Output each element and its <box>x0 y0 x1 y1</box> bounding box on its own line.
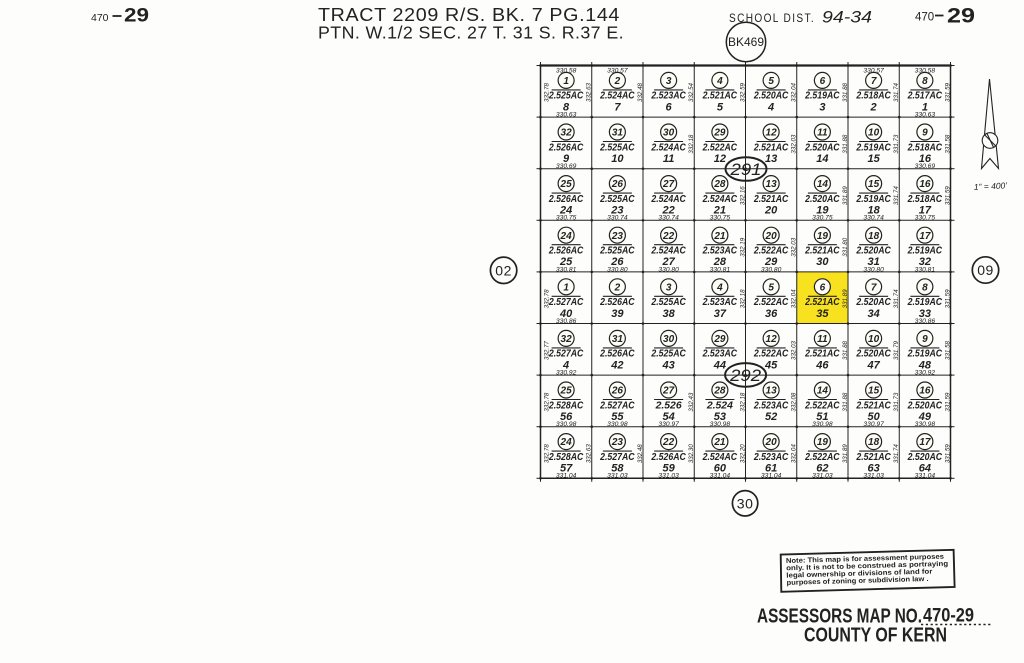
svg-text:332.03: 332.03 <box>791 134 798 153</box>
svg-text:2.519AC: 2.519AC <box>907 349 943 360</box>
svg-text:331.88: 331.88 <box>842 392 849 411</box>
svg-text:12: 12 <box>766 128 778 139</box>
svg-text:331.03: 331.03 <box>812 473 833 480</box>
svg-text:36: 36 <box>765 308 778 320</box>
svg-text:332.18: 332.18 <box>740 289 747 308</box>
svg-text:10: 10 <box>868 128 880 139</box>
svg-text:17: 17 <box>919 437 931 448</box>
svg-text:331.89: 331.89 <box>842 444 849 463</box>
svg-text:332.19: 332.19 <box>740 237 747 256</box>
svg-text:09: 09 <box>977 262 994 278</box>
svg-text:12: 12 <box>714 153 726 165</box>
svg-text:22: 22 <box>662 437 675 448</box>
svg-text:331.89: 331.89 <box>842 289 849 308</box>
svg-text:2.524AC: 2.524AC <box>702 194 738 205</box>
svg-text:2.527AC: 2.527AC <box>599 452 635 463</box>
svg-text:332.03: 332.03 <box>791 340 798 359</box>
svg-text:94-34: 94-34 <box>822 8 872 27</box>
svg-text:2.521AC: 2.521AC <box>753 194 789 205</box>
svg-text:331.59: 331.59 <box>945 444 952 463</box>
svg-text:27: 27 <box>662 179 675 190</box>
svg-text:COUNTY OF KERN: COUNTY OF KERN <box>804 624 947 647</box>
svg-text:2.526: 2.526 <box>655 400 683 411</box>
svg-text:7: 7 <box>871 76 877 87</box>
svg-text:332.59: 332.59 <box>740 82 747 101</box>
svg-text:2.522AC: 2.522AC <box>804 400 840 411</box>
svg-text:2.519AC: 2.519AC <box>907 297 943 308</box>
svg-text:332.30: 332.30 <box>688 444 695 463</box>
svg-text:16: 16 <box>919 386 931 397</box>
svg-text:2.522AC: 2.522AC <box>753 246 789 257</box>
svg-text:23: 23 <box>611 437 624 448</box>
svg-text:4: 4 <box>716 282 723 293</box>
svg-text:29: 29 <box>124 5 149 27</box>
svg-text:22: 22 <box>662 231 675 242</box>
svg-text:17: 17 <box>919 231 931 242</box>
svg-text:14: 14 <box>817 386 829 397</box>
svg-text:292: 292 <box>729 366 762 385</box>
svg-text:331.79: 331.79 <box>893 340 900 359</box>
svg-text:2.525AC: 2.525AC <box>599 194 635 205</box>
svg-text:2.517AC: 2.517AC <box>907 91 943 102</box>
svg-text:2.526AC: 2.526AC <box>599 297 635 308</box>
svg-text:1” = 400’: 1” = 400’ <box>974 180 1008 192</box>
svg-text:25: 25 <box>560 179 573 190</box>
svg-text:7: 7 <box>614 101 621 113</box>
svg-text:331.74: 331.74 <box>893 444 900 463</box>
svg-text:16: 16 <box>919 179 931 190</box>
svg-text:2.521AC: 2.521AC <box>804 349 840 360</box>
svg-text:331.04: 331.04 <box>761 473 782 480</box>
svg-text:15: 15 <box>868 386 880 397</box>
svg-text:2.525AC: 2.525AC <box>599 142 635 153</box>
svg-text:32: 32 <box>561 128 573 139</box>
svg-text:330.75: 330.75 <box>556 215 577 222</box>
svg-text:2.526AC: 2.526AC <box>599 349 635 360</box>
svg-text:330.80: 330.80 <box>761 266 782 273</box>
svg-text:330.98: 330.98 <box>915 421 936 428</box>
svg-text:330.74: 330.74 <box>658 215 679 222</box>
svg-text:332.18: 332.18 <box>740 392 747 411</box>
svg-text:3: 3 <box>666 76 672 87</box>
svg-text:331.59: 331.59 <box>945 392 952 411</box>
svg-text:32: 32 <box>561 334 573 345</box>
svg-text:2.518AC: 2.518AC <box>907 142 943 153</box>
svg-text:BK469: BK469 <box>728 35 764 49</box>
svg-text:2.525AC: 2.525AC <box>650 297 686 308</box>
svg-text:332.78: 332.78 <box>544 392 551 411</box>
svg-text:11: 11 <box>817 334 828 345</box>
svg-text:332.20: 332.20 <box>740 444 747 463</box>
svg-text:35: 35 <box>816 308 829 320</box>
svg-text:2.524AC: 2.524AC <box>650 142 686 153</box>
svg-text:2.520AC: 2.520AC <box>855 349 891 360</box>
svg-text:2.524AC: 2.524AC <box>650 194 686 205</box>
svg-text:52: 52 <box>765 411 777 423</box>
svg-text:470: 470 <box>915 12 934 24</box>
svg-text:30: 30 <box>816 256 829 268</box>
svg-text:2.527AC: 2.527AC <box>548 349 584 360</box>
svg-text:2.518AC: 2.518AC <box>907 194 943 205</box>
svg-text:2.524AC: 2.524AC <box>702 452 738 463</box>
svg-text:332.78: 332.78 <box>544 444 551 463</box>
svg-text:332.63: 332.63 <box>586 444 593 463</box>
svg-text:2.520AC: 2.520AC <box>855 246 891 257</box>
svg-text:4: 4 <box>767 101 774 113</box>
svg-text:30: 30 <box>663 128 675 139</box>
svg-text:43: 43 <box>661 359 674 371</box>
svg-text:2.523AC: 2.523AC <box>753 400 789 411</box>
svg-text:332.04: 332.04 <box>791 444 798 463</box>
svg-text:2.526AC: 2.526AC <box>548 142 584 153</box>
svg-text:2.520AC: 2.520AC <box>804 194 840 205</box>
svg-text:2.524AC: 2.524AC <box>650 246 686 257</box>
svg-text:2.527AC: 2.527AC <box>599 400 635 411</box>
svg-text:10: 10 <box>611 153 624 165</box>
svg-text:PTN. W.1/2 SEC. 27 T. 31 S. R.: PTN. W.1/2 SEC. 27 T. 31 S. R.37 E. <box>318 23 624 43</box>
svg-text:330.69: 330.69 <box>556 163 577 170</box>
svg-text:37: 37 <box>714 308 727 320</box>
svg-text:330.92: 330.92 <box>915 370 936 377</box>
svg-text:3: 3 <box>666 282 672 293</box>
svg-text:1: 1 <box>563 76 569 87</box>
svg-text:331.88: 331.88 <box>842 82 849 101</box>
svg-text:2.521AC: 2.521AC <box>855 452 891 463</box>
svg-text:46: 46 <box>815 359 829 371</box>
svg-text:25: 25 <box>560 386 573 397</box>
svg-text:7: 7 <box>871 282 877 293</box>
svg-text:330.69: 330.69 <box>915 163 936 170</box>
svg-text:8: 8 <box>922 282 928 293</box>
svg-text:11: 11 <box>663 153 674 165</box>
svg-text:18: 18 <box>868 231 880 242</box>
svg-text:331.89: 331.89 <box>842 186 849 205</box>
svg-text:27: 27 <box>662 386 675 397</box>
svg-text:2.523AC: 2.523AC <box>702 246 738 257</box>
svg-text:2.524AC: 2.524AC <box>599 91 635 102</box>
svg-text:332.04: 332.04 <box>791 289 798 308</box>
svg-text:31: 31 <box>612 334 624 345</box>
svg-text:9: 9 <box>922 128 928 139</box>
svg-text:6: 6 <box>666 101 673 113</box>
svg-text:330.86: 330.86 <box>556 318 577 325</box>
svg-text:14: 14 <box>817 179 829 190</box>
svg-text:330.81: 330.81 <box>556 266 577 273</box>
svg-text:332.78: 332.78 <box>544 82 551 101</box>
svg-text:2.521AC: 2.521AC <box>855 400 891 411</box>
svg-text:332.77: 332.77 <box>544 340 551 359</box>
svg-text:2.520AC: 2.520AC <box>907 452 943 463</box>
svg-text:2.527AC: 2.527AC <box>548 297 584 308</box>
svg-text:332.48: 332.48 <box>637 444 644 463</box>
svg-text:30: 30 <box>663 334 675 345</box>
svg-text:332.54: 332.54 <box>688 82 695 101</box>
svg-text:20: 20 <box>765 231 778 242</box>
svg-text:330.63: 330.63 <box>915 112 936 119</box>
svg-text:330.92: 330.92 <box>556 370 577 377</box>
svg-text:20: 20 <box>765 437 778 448</box>
svg-text:2.522AC: 2.522AC <box>702 142 738 153</box>
svg-text:8: 8 <box>922 76 928 87</box>
svg-text:330.75: 330.75 <box>812 215 833 222</box>
svg-text:2.525AC: 2.525AC <box>599 246 635 257</box>
svg-text:14: 14 <box>816 153 828 165</box>
svg-text:29: 29 <box>713 334 726 345</box>
svg-text:18: 18 <box>868 437 880 448</box>
svg-text:330.81: 330.81 <box>710 266 731 273</box>
svg-text:2.524: 2.524 <box>706 400 734 411</box>
svg-text:470: 470 <box>91 12 109 24</box>
svg-text:12: 12 <box>766 334 778 345</box>
svg-text:330.75: 330.75 <box>710 215 731 222</box>
svg-text:2.523AC: 2.523AC <box>650 91 686 102</box>
svg-text:34: 34 <box>867 308 879 320</box>
svg-text:331.74: 331.74 <box>893 82 900 101</box>
svg-text:331.74: 331.74 <box>893 186 900 205</box>
svg-text:21: 21 <box>713 231 726 242</box>
svg-text:30: 30 <box>737 495 754 511</box>
svg-text:330.98: 330.98 <box>607 421 628 428</box>
svg-text:02: 02 <box>495 262 512 278</box>
svg-text:331.04: 331.04 <box>915 473 936 480</box>
svg-text:330.58: 330.58 <box>556 68 577 75</box>
svg-text:332.18: 332.18 <box>688 134 695 153</box>
svg-text:11: 11 <box>817 128 828 139</box>
svg-text:331.88: 331.88 <box>842 340 849 359</box>
svg-text:3: 3 <box>819 101 825 113</box>
svg-text:291: 291 <box>729 160 761 179</box>
svg-text:6: 6 <box>820 282 826 293</box>
svg-text:5: 5 <box>768 282 774 293</box>
svg-text:330.58: 330.58 <box>915 68 936 75</box>
svg-text:330.74: 330.74 <box>863 215 884 222</box>
svg-text:20: 20 <box>764 205 778 217</box>
svg-text:331.73: 331.73 <box>893 134 900 153</box>
svg-text:331.59: 331.59 <box>945 82 952 101</box>
svg-text:2.518AC: 2.518AC <box>855 91 891 102</box>
svg-text:2.521AC: 2.521AC <box>804 246 840 257</box>
svg-text:2: 2 <box>614 76 621 87</box>
svg-text:24: 24 <box>560 231 573 242</box>
svg-text:2.528AC: 2.528AC <box>548 400 584 411</box>
svg-text:29: 29 <box>713 128 726 139</box>
svg-text:2.520AC: 2.520AC <box>753 91 789 102</box>
svg-text:2.521AC: 2.521AC <box>753 142 789 153</box>
svg-text:28: 28 <box>713 179 726 190</box>
svg-text:2.519AC: 2.519AC <box>907 246 943 257</box>
svg-text:2.525AC: 2.525AC <box>548 91 584 102</box>
svg-text:2.523AC: 2.523AC <box>702 349 738 360</box>
svg-text:332.48: 332.48 <box>637 82 644 101</box>
svg-text:29: 29 <box>947 5 975 28</box>
svg-text:331.04: 331.04 <box>710 473 731 480</box>
svg-text:19: 19 <box>817 231 829 242</box>
svg-text:26: 26 <box>611 386 624 397</box>
svg-text:331.03: 331.03 <box>658 473 679 480</box>
svg-text:28: 28 <box>713 386 726 397</box>
svg-text:6: 6 <box>820 76 826 87</box>
svg-text:332.16: 332.16 <box>740 186 747 205</box>
svg-text:332.03: 332.03 <box>791 237 798 256</box>
svg-text:2: 2 <box>870 101 877 113</box>
svg-text:2.523AC: 2.523AC <box>753 452 789 463</box>
svg-text:2.519AC: 2.519AC <box>855 194 891 205</box>
svg-text:330.57: 330.57 <box>607 68 628 75</box>
svg-text:332.43: 332.43 <box>688 392 695 411</box>
svg-text:9: 9 <box>922 334 928 345</box>
svg-text:330.97: 330.97 <box>658 421 679 428</box>
svg-text:2.525AC: 2.525AC <box>650 349 686 360</box>
svg-text:15: 15 <box>867 153 880 165</box>
svg-text:332.04: 332.04 <box>791 82 798 101</box>
svg-text:31: 31 <box>612 128 624 139</box>
svg-text:2.522AC: 2.522AC <box>804 452 840 463</box>
svg-text:332.63: 332.63 <box>586 82 593 101</box>
svg-text:5: 5 <box>717 101 724 113</box>
svg-text:13: 13 <box>766 179 778 190</box>
svg-text:331.58: 331.58 <box>945 134 952 153</box>
svg-text:19: 19 <box>817 437 829 448</box>
svg-text:330.80: 330.80 <box>863 266 884 273</box>
svg-text:330.81: 330.81 <box>915 266 936 273</box>
svg-text:331.88: 331.88 <box>842 134 849 153</box>
svg-text:2.528AC: 2.528AC <box>548 452 584 463</box>
svg-text:331.03: 331.03 <box>863 473 884 480</box>
svg-text:330.98: 330.98 <box>812 421 833 428</box>
svg-text:330.80: 330.80 <box>607 266 628 273</box>
svg-text:13: 13 <box>766 386 778 397</box>
svg-text:2.526AC: 2.526AC <box>548 194 584 205</box>
svg-text:2.522AC: 2.522AC <box>753 297 789 308</box>
svg-text:2.519AC: 2.519AC <box>855 142 891 153</box>
svg-text:2.522AC: 2.522AC <box>753 349 789 360</box>
svg-text:2.519AC: 2.519AC <box>804 91 840 102</box>
svg-text:331.58: 331.58 <box>945 340 952 359</box>
svg-text:330.98: 330.98 <box>710 421 731 428</box>
svg-text:331.03: 331.03 <box>607 473 628 480</box>
svg-text:2.520AC: 2.520AC <box>804 142 840 153</box>
svg-text:330.86: 330.86 <box>915 318 936 325</box>
svg-text:15: 15 <box>868 179 880 190</box>
svg-text:330.75: 330.75 <box>915 215 936 222</box>
svg-text:10: 10 <box>868 334 880 345</box>
svg-text:331.04: 331.04 <box>556 473 577 480</box>
svg-text:2.523AC: 2.523AC <box>702 297 738 308</box>
svg-text:13: 13 <box>765 153 777 165</box>
svg-text:331.80: 331.80 <box>842 237 849 256</box>
svg-text:5: 5 <box>768 76 774 87</box>
svg-text:2.520AC: 2.520AC <box>855 297 891 308</box>
svg-text:39: 39 <box>611 308 624 320</box>
svg-text:2.526AC: 2.526AC <box>650 452 686 463</box>
svg-text:331.59: 331.59 <box>945 186 952 205</box>
svg-text:2.526AC: 2.526AC <box>548 246 584 257</box>
svg-text:42: 42 <box>610 359 623 371</box>
svg-text:24: 24 <box>560 437 573 448</box>
svg-text:332.08: 332.08 <box>791 392 798 411</box>
svg-text:2.521AC: 2.521AC <box>804 297 840 308</box>
svg-text:330.74: 330.74 <box>607 215 628 222</box>
svg-text:2: 2 <box>614 282 621 293</box>
svg-text:23: 23 <box>611 231 624 242</box>
svg-text:21: 21 <box>713 437 726 448</box>
svg-text:38: 38 <box>662 308 675 320</box>
svg-text:47: 47 <box>866 359 880 371</box>
svg-text:2.521AC: 2.521AC <box>702 91 738 102</box>
svg-text:330.57: 330.57 <box>863 68 884 75</box>
svg-text:4: 4 <box>716 76 723 87</box>
svg-text:1: 1 <box>563 282 569 293</box>
svg-text:332.78: 332.78 <box>544 289 551 308</box>
svg-text:331.59: 331.59 <box>945 289 952 308</box>
svg-text:331.73: 331.73 <box>893 392 900 411</box>
svg-text:331.74: 331.74 <box>893 289 900 308</box>
svg-text:330.63: 330.63 <box>556 112 577 119</box>
svg-text:330.80: 330.80 <box>658 266 679 273</box>
svg-text:2.520AC: 2.520AC <box>907 400 943 411</box>
svg-text:330.98: 330.98 <box>556 421 577 428</box>
svg-text:26: 26 <box>611 179 624 190</box>
svg-text:45: 45 <box>764 359 778 371</box>
svg-text:330.97: 330.97 <box>863 421 884 428</box>
svg-text:44: 44 <box>713 359 726 371</box>
